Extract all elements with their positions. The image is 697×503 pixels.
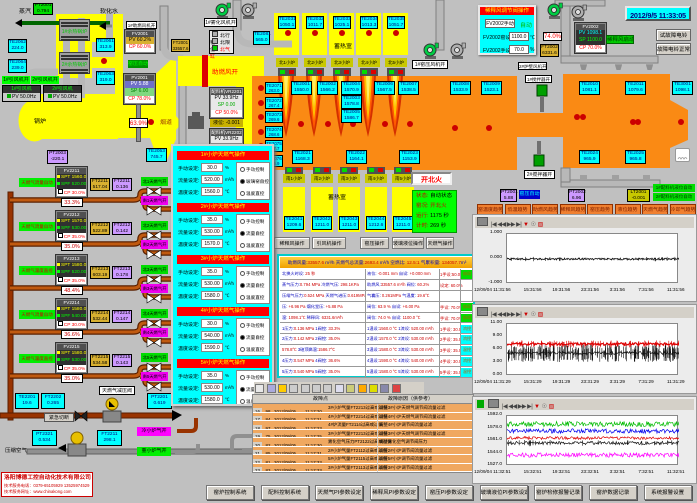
svg-text:蓄热室: 蓄热室 [334, 42, 352, 50]
svg-text:蓄热室: 蓄热室 [328, 193, 346, 201]
svg-text:烟道: 烟道 [160, 118, 172, 126]
svg-text:助燃风开: 助燃风开 [212, 68, 239, 76]
svg-text:锅炉: 锅炉 [34, 117, 46, 125]
